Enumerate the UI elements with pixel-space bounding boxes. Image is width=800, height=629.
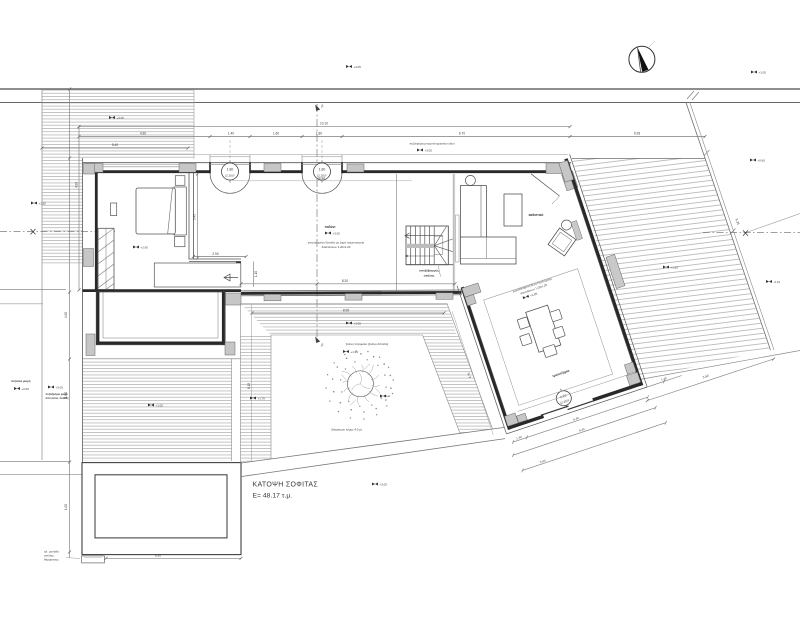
svg-text:+3.05: +3.05: [56, 385, 64, 389]
svg-text:+2.90: +2.90: [141, 245, 149, 249]
svg-text:ξύλινη πέργκολα (ξύλινο δάπεδο: ξύλινη πέργκολα (ξύλινο δάπεδο): [346, 342, 389, 346]
svg-text:+1.05: +1.05: [759, 70, 767, 74]
svg-text:+3.05: +3.05: [333, 231, 341, 235]
svg-text:+3.05: +3.05: [354, 321, 362, 325]
svg-text:διαστάσεων 1,20x1,20: διαστάσεων 1,20x1,20: [322, 245, 351, 249]
svg-text:1.80: 1.80: [316, 131, 322, 135]
svg-text:1.00: 1.00: [64, 504, 68, 510]
svg-text:-2.10: -2.10: [774, 280, 781, 284]
svg-text:(2.20)Υ: (2.20)Υ: [225, 174, 235, 178]
svg-text:θέρμανσης: θέρμανσης: [44, 558, 59, 562]
svg-text:9.28: 9.28: [634, 131, 640, 135]
svg-text:10.30: 10.30: [317, 176, 325, 180]
svg-text:β: β: [322, 104, 324, 108]
svg-text:1.80: 1.80: [319, 168, 326, 172]
svg-text:5.40: 5.40: [112, 143, 118, 147]
svg-text:+1.70: +1.70: [258, 396, 266, 400]
svg-text:4.90: 4.90: [75, 182, 79, 188]
svg-text:10.10: 10.10: [320, 122, 328, 126]
svg-text:2.90: 2.90: [212, 252, 218, 256]
svg-text:πεζοδρόμιο μικρό: πεζοδρόμιο μικρό: [46, 392, 69, 396]
svg-text:6.30: 6.30: [155, 554, 161, 558]
svg-text:σκάλας: σκάλας: [424, 273, 435, 277]
svg-text:πεζοδρόμιο μπροστά φρεατίου οδ: πεζοδρόμιο μπροστά φρεατίου οδού: [410, 141, 455, 145]
svg-text:ΚΑΤΟΨΗ ΣΟΦΙΤΑΣ: ΚΑΤΟΨΗ ΣΟΦΙΤΑΣ: [253, 482, 319, 489]
svg-text:+3.05: +3.05: [425, 148, 433, 152]
svg-text:β: β: [322, 343, 324, 347]
svg-text:5.45: 5.45: [193, 214, 197, 220]
svg-text:+0.60: +0.60: [758, 158, 766, 162]
svg-text:4.90: 4.90: [140, 131, 146, 135]
svg-text:καθιστικό: καθιστικό: [529, 213, 544, 217]
svg-text:επιστρωμένο δάπεδο με ξηρή τσι: επιστρωμένο δάπεδο με ξηρή τσιμεντοκονία: [308, 241, 365, 245]
svg-text:(διαμέτρου κόμης 4.0 μ): (διαμέτρου κόμης 4.0 μ): [331, 428, 362, 432]
svg-text:υποβιβασμός: υποβιβασμός: [419, 269, 439, 273]
svg-text:1.10: 1.10: [254, 271, 258, 277]
svg-text:1.80: 1.80: [227, 168, 234, 172]
svg-text:+1.50: +1.50: [671, 265, 679, 269]
svg-text:8.20: 8.20: [342, 279, 348, 283]
svg-text:+1.30: +1.30: [351, 350, 359, 354]
svg-text:Ε= 48.17 τ.μ.: Ε= 48.17 τ.μ.: [253, 493, 293, 500]
svg-text:+0.60: +0.60: [22, 387, 30, 391]
svg-text:8.95: 8.95: [343, 308, 349, 312]
svg-text:+3.05: +3.05: [117, 116, 125, 120]
svg-text:4.90: 4.90: [64, 312, 68, 318]
svg-text:8.15: 8.15: [247, 383, 251, 389]
svg-text:πεζούλα μικρή: πεζούλα μικρή: [11, 379, 31, 383]
svg-text:σαλόνι: σαλόνι: [325, 225, 336, 229]
svg-text:+1.05: +1.05: [156, 403, 164, 407]
svg-text:1.60: 1.60: [273, 131, 279, 135]
svg-text:+3.05: +3.05: [354, 65, 362, 69]
svg-text:+1.20: +1.20: [39, 201, 47, 205]
svg-text:από αντισ. πλάκας: από αντισ. πλάκας: [46, 396, 70, 400]
svg-text:+3.05: +3.05: [380, 482, 388, 486]
svg-text:1.40: 1.40: [228, 131, 234, 135]
svg-text:6.70: 6.70: [459, 131, 465, 135]
